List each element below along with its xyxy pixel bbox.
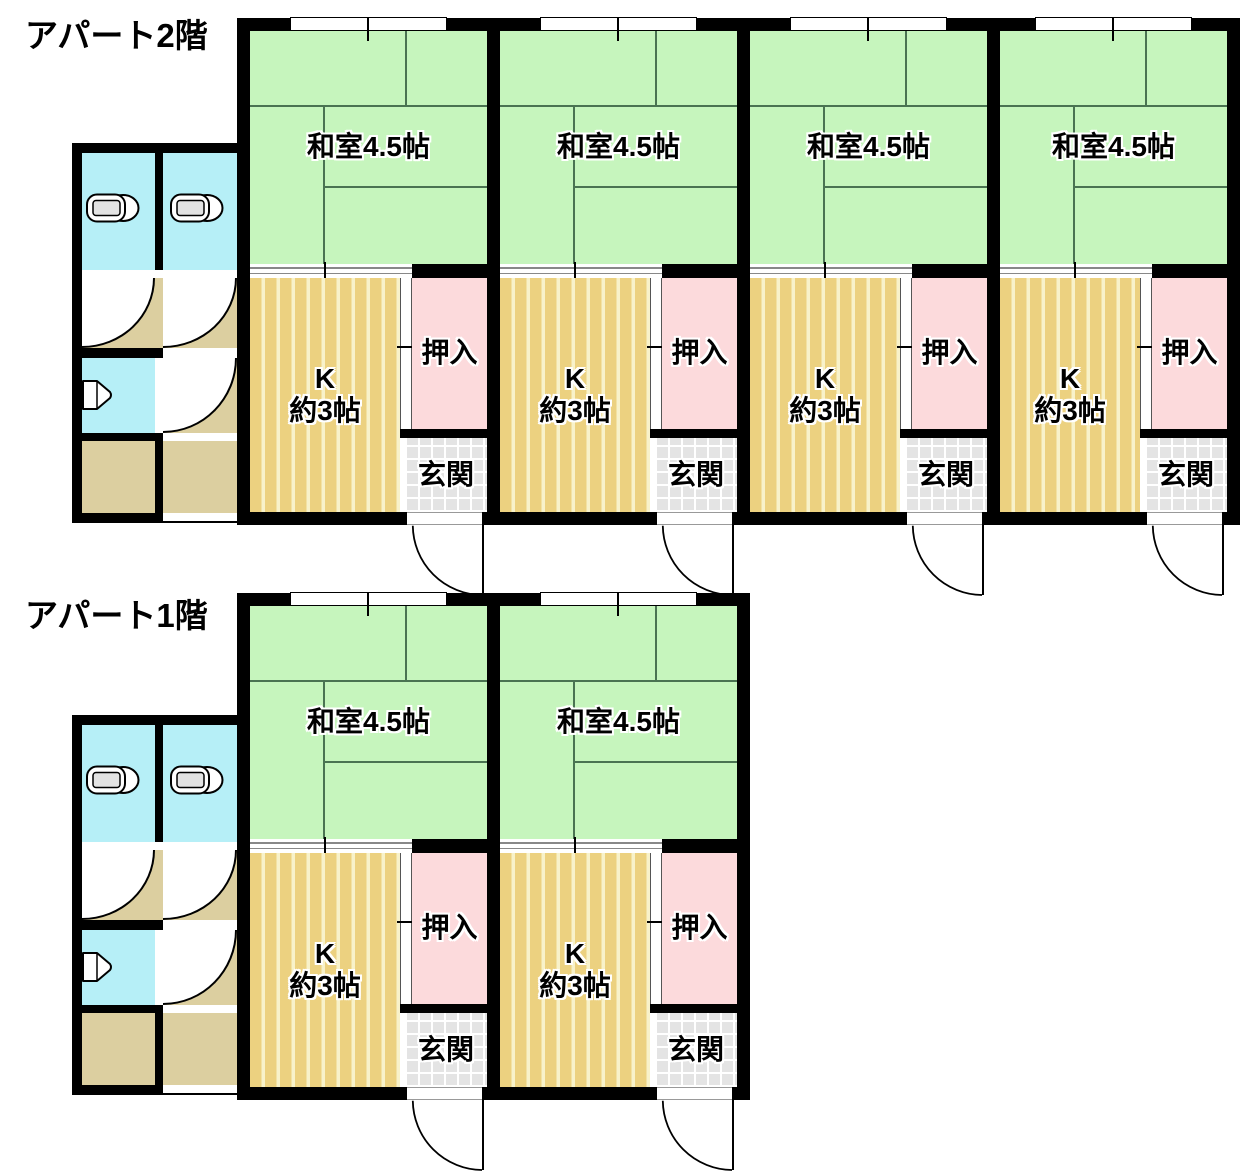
wall-segment bbox=[662, 264, 737, 278]
wall-segment bbox=[155, 153, 163, 270]
floor-1-label: アパート1階 bbox=[25, 597, 208, 635]
wall-segment bbox=[155, 1013, 163, 1085]
entrance-room: 玄関 bbox=[655, 438, 737, 512]
kitchen-room: K約3帖 bbox=[250, 278, 400, 512]
entrance-room: 玄関 bbox=[1145, 438, 1227, 512]
entrance-room: 玄関 bbox=[405, 1013, 487, 1087]
track-line bbox=[250, 842, 412, 844]
sliding-door-track bbox=[750, 264, 912, 278]
track-line bbox=[500, 273, 662, 275]
closet-room: 押入 bbox=[412, 278, 487, 429]
entrance-label: 玄関 bbox=[405, 1013, 487, 1087]
track-line bbox=[500, 267, 662, 269]
sliding-door-strip bbox=[1140, 278, 1152, 433]
track-line bbox=[750, 273, 912, 275]
door-opening bbox=[163, 513, 237, 521]
entrance-opening bbox=[407, 512, 482, 525]
wall-segment bbox=[72, 143, 237, 153]
window-center-tick bbox=[867, 17, 869, 41]
entrance-opening bbox=[907, 512, 982, 525]
urinal-room bbox=[82, 358, 155, 433]
entrance-opening bbox=[657, 1087, 732, 1100]
washitsu-label: 和室4.5帖 bbox=[250, 31, 487, 264]
track-line bbox=[500, 848, 662, 850]
closet-label: 押入 bbox=[412, 853, 487, 1004]
wall-segment bbox=[72, 143, 82, 523]
wall-segment bbox=[155, 725, 163, 842]
wall-segment bbox=[900, 429, 987, 438]
urinal-room bbox=[82, 930, 155, 1005]
kitchen-label-group: K約3帖 bbox=[250, 278, 400, 512]
sliding-door-track bbox=[500, 839, 662, 853]
kitchen-room: K約3帖 bbox=[1000, 278, 1140, 512]
washitsu-room: 和室4.5帖 bbox=[250, 606, 487, 839]
wall-segment bbox=[400, 1004, 487, 1013]
kitchen-label-line1: K bbox=[815, 363, 835, 395]
window-center-tick bbox=[1112, 17, 1114, 41]
floor-plan-page: { "floors": [ { "label": "アパート2階", "unit… bbox=[0, 0, 1244, 1164]
entrance-label: 玄関 bbox=[405, 438, 487, 512]
entrance-label: 玄関 bbox=[655, 438, 737, 512]
toilet-stall bbox=[82, 153, 155, 270]
kitchen-label-line2: 約3帖 bbox=[1034, 395, 1106, 427]
wall-segment bbox=[72, 715, 237, 725]
entrance-door-swing-arc bbox=[662, 525, 733, 596]
kitchen-label-group: K約3帖 bbox=[500, 853, 650, 1087]
window-center-tick bbox=[367, 592, 369, 616]
washitsu-room: 和室4.5帖 bbox=[250, 31, 487, 264]
storage-area bbox=[82, 441, 155, 513]
wall-segment bbox=[1140, 429, 1227, 438]
entrance-opening bbox=[407, 1087, 482, 1100]
closet-label: 押入 bbox=[912, 278, 987, 429]
wall-segment bbox=[82, 1005, 163, 1013]
sliding-door-strip bbox=[400, 853, 412, 1008]
toilet-icon bbox=[86, 193, 140, 223]
kitchen-label-line2: 約3帖 bbox=[289, 395, 361, 427]
kitchen-label-group: K約3帖 bbox=[1000, 278, 1140, 512]
kitchen-room: K約3帖 bbox=[500, 278, 650, 512]
sliding-door-strip bbox=[900, 278, 912, 433]
wall-segment bbox=[912, 264, 987, 278]
wall-segment bbox=[662, 839, 737, 853]
unit: 和室4.5帖K約3帖押入玄関 bbox=[737, 18, 1000, 525]
closet-room: 押入 bbox=[662, 278, 737, 429]
kitchen-label-group: K約3帖 bbox=[500, 278, 650, 512]
closet-label: 押入 bbox=[412, 278, 487, 429]
wall-segment bbox=[650, 429, 737, 438]
toilet-block bbox=[72, 715, 237, 1095]
kitchen-label-line2: 約3帖 bbox=[289, 970, 361, 1002]
closet-room: 押入 bbox=[912, 278, 987, 429]
door-opening bbox=[155, 358, 163, 433]
kitchen-label-group: K約3帖 bbox=[750, 278, 900, 512]
kitchen-room: K約3帖 bbox=[250, 853, 400, 1087]
kitchen-label-group: K約3帖 bbox=[250, 853, 400, 1087]
track-line bbox=[1000, 267, 1152, 269]
toilet-icon bbox=[170, 765, 224, 795]
toilet-stall bbox=[163, 725, 237, 842]
urinal-icon bbox=[82, 947, 114, 987]
track-line bbox=[250, 267, 412, 269]
unit: 和室4.5帖K約3帖押入玄関 bbox=[237, 593, 500, 1100]
track-line bbox=[250, 848, 412, 850]
washitsu-room: 和室4.5帖 bbox=[1000, 31, 1227, 264]
kitchen-label-line1: K bbox=[565, 938, 585, 970]
door-opening bbox=[82, 842, 237, 850]
entrance-room: 玄関 bbox=[405, 438, 487, 512]
door-opening bbox=[82, 270, 237, 278]
washitsu-room: 和室4.5帖 bbox=[500, 606, 737, 839]
washitsu-room: 和室4.5帖 bbox=[750, 31, 987, 264]
toilet-block bbox=[72, 143, 237, 523]
track-line bbox=[1000, 273, 1152, 275]
sliding-door-strip bbox=[400, 278, 412, 433]
closet-room: 押入 bbox=[1152, 278, 1227, 429]
window-center-tick bbox=[617, 592, 619, 616]
entrance-room: 玄関 bbox=[655, 1013, 737, 1087]
kitchen-label-line1: K bbox=[315, 938, 335, 970]
floor-plan: 和室4.5帖K約3帖押入玄関和室4.5帖K約3帖押入玄関和室4.5帖K約3帖押入… bbox=[0, 0, 1244, 1164]
wall-segment bbox=[82, 433, 163, 441]
unit: 和室4.5帖K約3帖押入玄関 bbox=[237, 18, 500, 525]
door-opening bbox=[163, 1085, 237, 1093]
sliding-door-track bbox=[250, 264, 412, 278]
toilet-icon bbox=[170, 193, 224, 223]
entrance-label: 玄関 bbox=[1145, 438, 1227, 512]
entrance-door-swing-arc bbox=[1152, 525, 1223, 596]
wall-segment bbox=[412, 839, 487, 853]
window-center-tick bbox=[617, 17, 619, 41]
track-line bbox=[750, 267, 912, 269]
sliding-door-track bbox=[500, 264, 662, 278]
urinal-icon bbox=[82, 375, 114, 415]
wall-segment bbox=[72, 715, 82, 1095]
sliding-door-strip bbox=[650, 853, 662, 1008]
unit: 和室4.5帖K約3帖押入玄関 bbox=[487, 593, 750, 1100]
sliding-door-strip bbox=[650, 278, 662, 433]
wall-segment bbox=[1152, 264, 1227, 278]
washitsu-label: 和室4.5帖 bbox=[750, 31, 987, 264]
entrance-door-swing-arc bbox=[412, 525, 483, 596]
entrance-door-swing-arc bbox=[662, 1100, 733, 1171]
sliding-door-track bbox=[1000, 264, 1152, 278]
window-center-tick bbox=[367, 17, 369, 41]
toilet-stall bbox=[163, 153, 237, 270]
washitsu-label: 和室4.5帖 bbox=[1000, 31, 1227, 264]
track-line bbox=[250, 273, 412, 275]
door-opening bbox=[155, 930, 163, 1005]
entrance-room: 玄関 bbox=[905, 438, 987, 512]
toilet-icon bbox=[86, 765, 140, 795]
toilet-stall bbox=[82, 725, 155, 842]
kitchen-label-line2: 約3帖 bbox=[539, 970, 611, 1002]
entrance-opening bbox=[657, 512, 732, 525]
washitsu-label: 和室4.5帖 bbox=[500, 31, 737, 264]
unit: 和室4.5帖K約3帖押入玄関 bbox=[987, 18, 1240, 525]
wall-segment bbox=[82, 920, 163, 930]
washitsu-label: 和室4.5帖 bbox=[250, 606, 487, 839]
storage-area bbox=[82, 1013, 155, 1085]
wall-segment bbox=[650, 1004, 737, 1013]
closet-room: 押入 bbox=[662, 853, 737, 1004]
kitchen-room: K約3帖 bbox=[500, 853, 650, 1087]
entrance-door-swing-arc bbox=[412, 1100, 483, 1171]
kitchen-label-line2: 約3帖 bbox=[539, 395, 611, 427]
closet-room: 押入 bbox=[412, 853, 487, 1004]
entrance-label: 玄関 bbox=[905, 438, 987, 512]
closet-label: 押入 bbox=[662, 278, 737, 429]
entrance-door-swing-arc bbox=[912, 525, 983, 596]
kitchen-label-line1: K bbox=[315, 363, 335, 395]
closet-label: 押入 bbox=[662, 853, 737, 1004]
kitchen-room: K約3帖 bbox=[750, 278, 900, 512]
washitsu-room: 和室4.5帖 bbox=[500, 31, 737, 264]
wall-segment bbox=[82, 348, 163, 358]
unit: 和室4.5帖K約3帖押入玄関 bbox=[487, 18, 750, 525]
closet-label: 押入 bbox=[1152, 278, 1227, 429]
wall-segment bbox=[155, 441, 163, 513]
wall-segment bbox=[412, 264, 487, 278]
corridor-area bbox=[163, 1013, 237, 1085]
sliding-door-track bbox=[250, 839, 412, 853]
kitchen-label-line1: K bbox=[1060, 363, 1080, 395]
track-line bbox=[500, 842, 662, 844]
floor-2-label: アパート2階 bbox=[25, 17, 208, 55]
washitsu-label: 和室4.5帖 bbox=[500, 606, 737, 839]
corridor-area bbox=[163, 441, 237, 513]
entrance-label: 玄関 bbox=[655, 1013, 737, 1087]
wall-segment bbox=[400, 429, 487, 438]
kitchen-label-line1: K bbox=[565, 363, 585, 395]
kitchen-label-line2: 約3帖 bbox=[789, 395, 861, 427]
entrance-opening bbox=[1147, 512, 1222, 525]
